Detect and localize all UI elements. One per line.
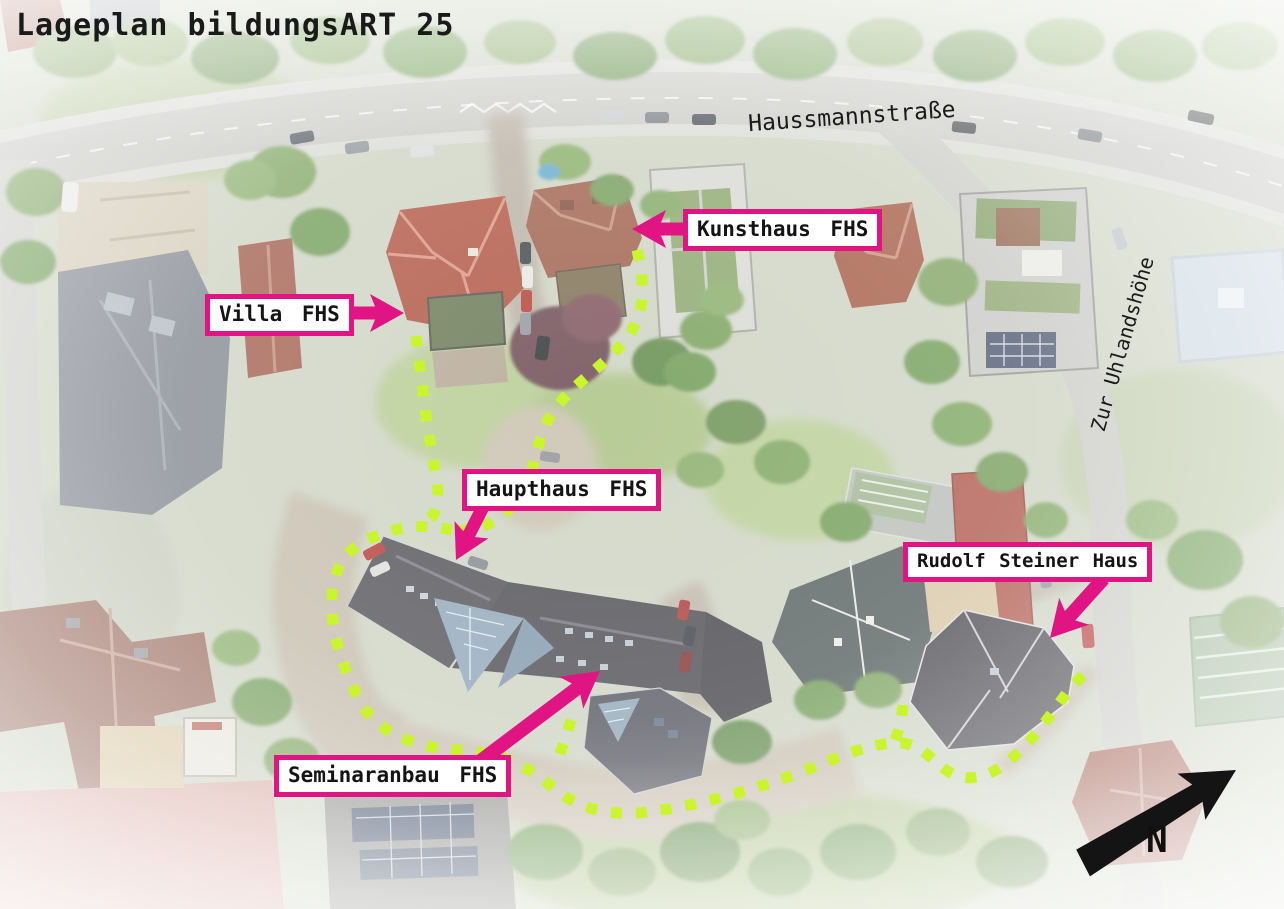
compass-north-label: N <box>1146 820 1168 861</box>
building-label-kunsthaus: Kunsthaus FHS <box>683 209 882 251</box>
building-label-villa: Villa FHS <box>205 294 354 336</box>
building-label-haupthaus: Haupthaus FHS <box>462 469 661 511</box>
page-title: Lageplan bildungsART 25 <box>16 8 454 43</box>
building-label-seminaranbau: Seminaranbau FHS <box>274 755 511 797</box>
lageplan-map: Lageplan bildungsART 25 Haussmannstraße … <box>0 0 1284 909</box>
building-label-rudolf-steiner: Rudolf Steiner Haus <box>903 542 1152 582</box>
aerial-photo <box>0 0 1284 909</box>
